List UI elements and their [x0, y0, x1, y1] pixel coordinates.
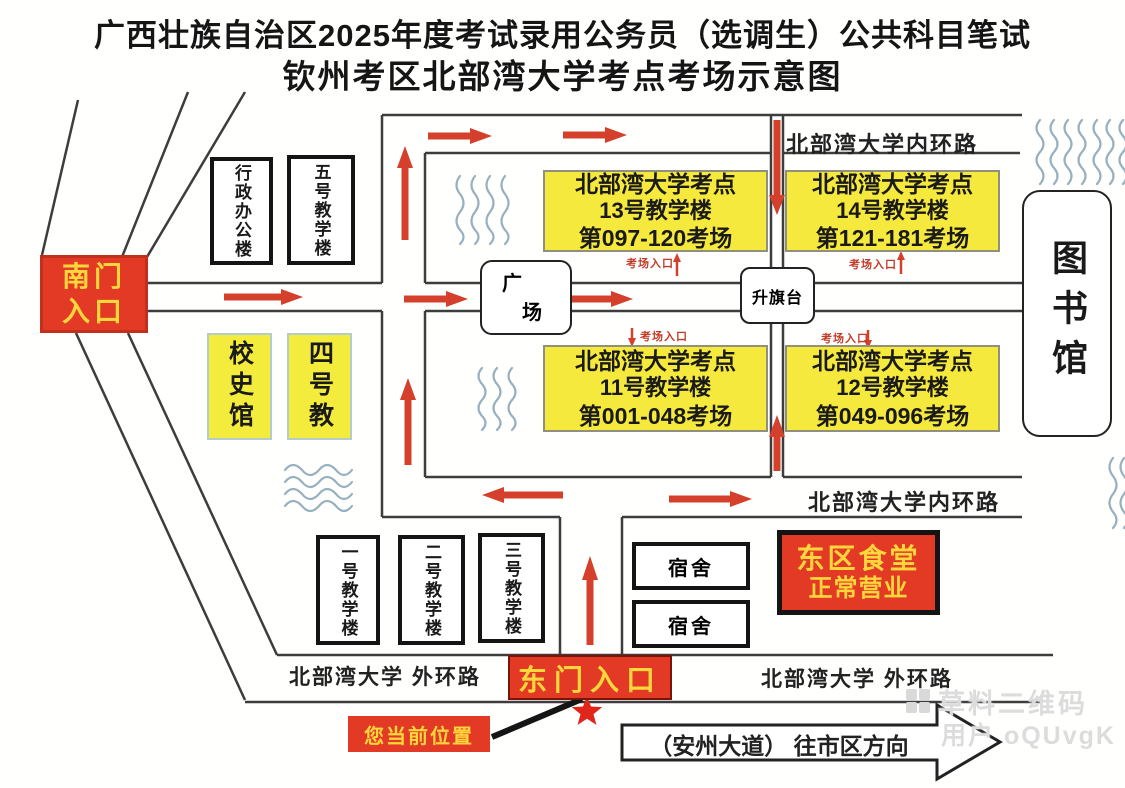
arrow-right-icon [428, 128, 492, 144]
entrance-arrow-up-icon [673, 253, 681, 276]
building-teach-3: 三号教学楼 [478, 533, 545, 643]
exam-site-building-12: 北部湾大学考点 12号教学楼 第049-096考场 [785, 345, 1000, 432]
entrance-label-12: 考场入口 [821, 330, 869, 346]
building-flag-platform: 升旗台 [740, 267, 815, 324]
arrow-up-icon [400, 378, 416, 465]
building-teach-5: 五号教学楼 [287, 155, 355, 265]
building-library: 图书馆 [1022, 190, 1112, 437]
south-gate-line1: 南门 [62, 259, 126, 294]
arrow-left-icon [482, 487, 563, 503]
south-gate-line2: 入口 [62, 294, 126, 329]
road-label-inner-ring-top: 北部湾大学内环路 [786, 127, 978, 159]
building-canteen: 东区食堂 正常营业 [777, 530, 940, 615]
campus-map: 广西壮族自治区2025年度考试录用公务员（选调生）公共科目笔试 钦州考区北部湾大… [0, 0, 1125, 788]
building-teach-2: 二号教学楼 [398, 535, 465, 645]
arrow-up-icon [397, 146, 413, 240]
building-plaza: 广 场 [480, 260, 572, 335]
arrow-right-icon [404, 291, 468, 307]
south-gate-entrance: 南门 入口 [40, 255, 148, 333]
exam-site-building-13: 北部湾大学考点 13号教学楼 第097-120考场 [543, 170, 768, 252]
exam-site-building-14: 北部湾大学考点 14号教学楼 第121-181考场 [785, 170, 1000, 252]
road-label-outer-ring-left: 北部湾大学 外环路 [289, 661, 481, 691]
building-dorm-2: 宿舍 [632, 600, 750, 648]
entrance-arrow-up-icon [897, 251, 905, 274]
building-teach-1: 一号教学楼 [316, 535, 380, 645]
building-admin-office: 行政办公楼 [210, 157, 273, 265]
arrow-right-icon [564, 291, 633, 307]
entrance-label-13: 考场入口 [626, 255, 674, 271]
exam-site-building-11: 北部湾大学考点 11号教学楼 第001-048考场 [543, 345, 768, 432]
east-gate-entrance: 东门入口 [508, 655, 672, 700]
arrow-up-icon [582, 556, 598, 645]
location-pointer-line [492, 699, 582, 737]
road-label-inner-ring-bottom: 北部湾大学内环路 [808, 485, 1000, 517]
current-location-tag: 您当前位置 [348, 716, 490, 752]
avenue-direction-label: （安州大道） 往市区方向 [624, 727, 934, 761]
building-teach-4: 四号教 [287, 333, 352, 440]
building-school-history: 校史馆 [207, 333, 272, 440]
arrow-right-icon [669, 491, 752, 507]
building-dorm-1: 宿舍 [632, 542, 750, 590]
road-label-outer-ring-right: 北部湾大学 外环路 [761, 663, 953, 693]
arrow-right-icon [563, 127, 627, 143]
entrance-label-14: 考场入口 [849, 256, 897, 272]
watermark-user: 用户 oQUvgK [941, 716, 1116, 752]
entrance-label-11: 考场入口 [640, 328, 688, 344]
arrow-right-icon [224, 289, 303, 305]
